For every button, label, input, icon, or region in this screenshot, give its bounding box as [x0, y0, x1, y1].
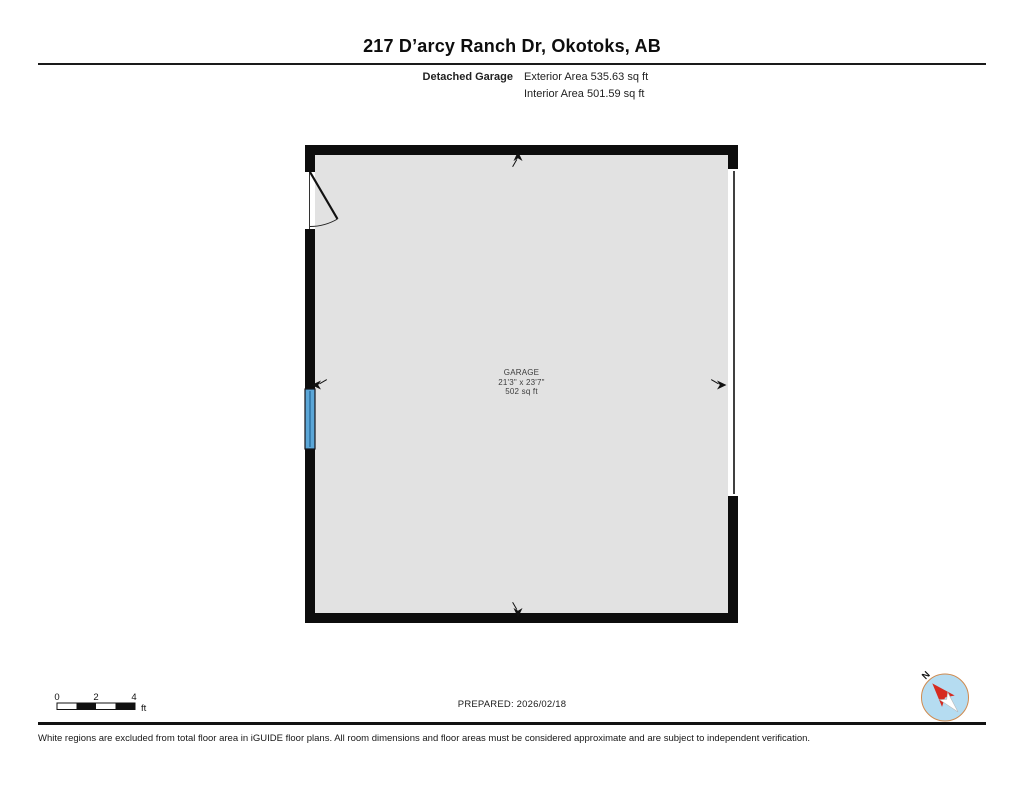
prepared-date: PREPARED: 2026/02/18: [0, 699, 1024, 710]
room-area: 502 sq ft: [421, 387, 622, 397]
wall-left-middle: [305, 229, 315, 389]
room-name: GARAGE: [421, 368, 622, 378]
room-dimensions: 21'3" x 23'7": [421, 378, 622, 388]
wall-left-lower: [305, 449, 315, 623]
wall-right-lower: [728, 496, 738, 623]
wall-left-upper: [305, 145, 315, 172]
disclaimer-text: White regions are excluded from total fl…: [38, 733, 958, 744]
room-label: GARAGE 21'3" x 23'7" 502 sq ft: [421, 368, 622, 397]
footer-divider: [38, 722, 986, 725]
compass: N: [920, 669, 969, 721]
wall-top: [305, 145, 738, 155]
garage-door-opening: [728, 169, 738, 496]
garage-door-panel: [733, 171, 735, 494]
floor-plan-page: 217 D’arcy Ranch Dr, Okotoks, AB Detache…: [0, 0, 1024, 791]
wall-right-upper: [728, 145, 738, 169]
wall-bottom: [305, 613, 738, 623]
